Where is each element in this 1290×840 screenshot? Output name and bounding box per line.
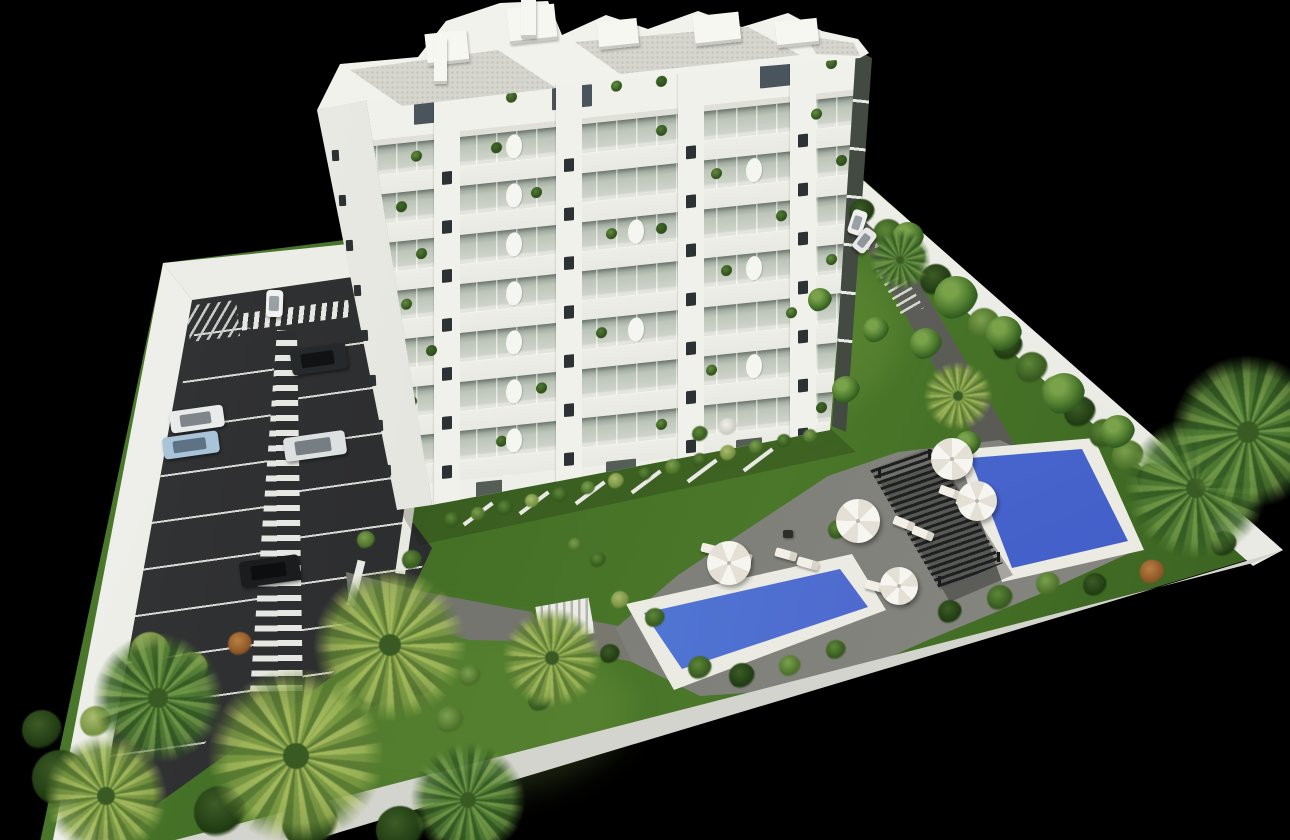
palm-crown-center bbox=[148, 688, 167, 707]
palm-crown-center bbox=[379, 634, 401, 656]
umbrella-center bbox=[727, 561, 731, 565]
hedge-bush bbox=[1083, 573, 1107, 597]
parasol-umbrella bbox=[931, 438, 973, 480]
terrace-hedge bbox=[581, 481, 595, 495]
terrace-hedge bbox=[693, 453, 707, 467]
pier-window bbox=[442, 269, 452, 283]
pier-window bbox=[564, 403, 574, 417]
pier-window bbox=[442, 171, 452, 185]
umbrella-center bbox=[950, 457, 954, 461]
pier-window bbox=[564, 354, 574, 368]
pier-window bbox=[686, 145, 696, 159]
west-facade-window bbox=[383, 465, 391, 476]
terrace-hedge bbox=[665, 459, 681, 475]
car-windshield bbox=[250, 562, 286, 581]
garden-tree bbox=[910, 328, 942, 360]
terrace-hedge bbox=[777, 434, 791, 448]
terrace-hedge bbox=[497, 500, 513, 516]
architectural-render-scene bbox=[0, 0, 1290, 840]
car-windshield bbox=[268, 295, 278, 310]
car-windshield bbox=[179, 411, 212, 428]
pier-window bbox=[686, 194, 696, 208]
pier-window bbox=[798, 182, 808, 196]
garden-bush bbox=[719, 418, 737, 436]
garden-bush bbox=[645, 608, 665, 628]
pier-window bbox=[686, 341, 696, 355]
garden-bush bbox=[228, 632, 252, 656]
west-facade-window bbox=[331, 150, 339, 161]
parasol-umbrella bbox=[957, 481, 997, 521]
pier-window bbox=[686, 390, 696, 404]
garden-bush bbox=[568, 538, 582, 552]
west-facade-window bbox=[346, 240, 354, 251]
pier-window bbox=[798, 133, 808, 147]
pergola-post bbox=[997, 552, 1000, 562]
pier-window bbox=[442, 465, 452, 479]
palm-tree bbox=[922, 360, 994, 432]
pergola-post bbox=[938, 576, 941, 586]
hedge-bush bbox=[688, 656, 712, 680]
facade-pier bbox=[790, 44, 816, 467]
hedge-bush bbox=[779, 655, 801, 677]
rooftop-chimney bbox=[521, 0, 536, 38]
west-facade-window bbox=[354, 285, 362, 296]
palm-crown-center bbox=[545, 651, 560, 666]
pier-window bbox=[564, 256, 574, 270]
pier-window bbox=[798, 329, 808, 343]
car-windshield bbox=[850, 214, 863, 230]
umbrella-center bbox=[856, 519, 860, 523]
west-facade-window bbox=[368, 375, 376, 386]
west-facade-window bbox=[339, 195, 347, 206]
pier-window bbox=[564, 158, 574, 172]
pier-window bbox=[442, 220, 452, 234]
pier-window bbox=[798, 231, 808, 245]
garden-bush bbox=[590, 552, 606, 568]
terrace-hedge bbox=[444, 512, 460, 528]
garden-tree bbox=[934, 276, 978, 320]
facade-pier bbox=[556, 68, 582, 491]
garden-bush bbox=[436, 706, 464, 734]
garden-bush bbox=[611, 591, 629, 609]
pier-window bbox=[686, 292, 696, 306]
rooftop-structure bbox=[693, 12, 742, 47]
garden-tree bbox=[1101, 415, 1135, 449]
facade-pier bbox=[678, 55, 704, 478]
terrace-hedge bbox=[803, 429, 817, 443]
rooftop-structure bbox=[597, 18, 640, 50]
garden-tree bbox=[986, 316, 1022, 352]
pier-window bbox=[564, 305, 574, 319]
car-windshield bbox=[294, 437, 331, 455]
barbecue-grill bbox=[783, 530, 793, 538]
hedge-bush bbox=[938, 600, 962, 624]
rooftop-structure bbox=[424, 30, 469, 66]
pier-window bbox=[442, 318, 452, 332]
pier-window bbox=[564, 207, 574, 221]
garden-bush bbox=[1140, 560, 1164, 584]
palm-tree bbox=[500, 606, 604, 710]
palm-crown-center bbox=[97, 787, 115, 805]
west-facade-window bbox=[361, 330, 369, 341]
pier-window bbox=[686, 439, 696, 453]
umbrella-center bbox=[897, 584, 901, 588]
hedge-bush bbox=[729, 663, 755, 689]
pier-window bbox=[686, 243, 696, 257]
rooftop-chimney bbox=[434, 38, 447, 84]
car-windshield bbox=[172, 437, 206, 454]
pier-window bbox=[798, 280, 808, 294]
pier-window bbox=[564, 452, 574, 466]
rooftop-structure bbox=[775, 18, 819, 48]
palm-crown-center bbox=[283, 743, 309, 769]
terrace-hedge bbox=[552, 487, 568, 503]
umbrella-center bbox=[975, 499, 979, 503]
palm-crown-center bbox=[1237, 421, 1259, 443]
palm-tree bbox=[204, 664, 388, 840]
garden-bush bbox=[22, 710, 62, 750]
palm-crown-center bbox=[896, 256, 905, 265]
terrace-hedge bbox=[720, 445, 736, 461]
hedge-bush bbox=[1016, 352, 1048, 384]
west-facade-window bbox=[376, 420, 384, 431]
car-driving-white bbox=[265, 289, 283, 317]
pier-window bbox=[442, 367, 452, 381]
terrace-hedge bbox=[749, 440, 763, 454]
garden-tree bbox=[832, 376, 860, 404]
pier-window bbox=[442, 416, 452, 430]
garden-tree bbox=[1043, 373, 1085, 415]
garden-tree bbox=[808, 288, 832, 312]
terrace-hedge bbox=[525, 494, 539, 508]
terrace-hedge bbox=[471, 507, 485, 521]
garden-bush bbox=[692, 426, 708, 442]
pergola-post bbox=[878, 468, 881, 478]
parasol-umbrella bbox=[707, 541, 751, 585]
hedge-bush bbox=[1036, 572, 1060, 596]
parasol-umbrella bbox=[836, 499, 880, 543]
hedge-bush bbox=[987, 585, 1013, 611]
pier-window bbox=[798, 378, 808, 392]
terrace-hedge bbox=[638, 467, 652, 481]
palm-crown-center bbox=[953, 391, 963, 401]
palm-crown-center bbox=[460, 792, 477, 809]
terrace-hedge bbox=[608, 473, 624, 489]
facade-pier bbox=[434, 81, 460, 504]
garden-tree bbox=[863, 317, 889, 343]
car-windshield bbox=[300, 350, 334, 369]
parasol-umbrella bbox=[880, 567, 918, 605]
garden-bush bbox=[357, 531, 375, 549]
palm-tree bbox=[868, 228, 932, 292]
hedge-bush bbox=[826, 640, 846, 660]
